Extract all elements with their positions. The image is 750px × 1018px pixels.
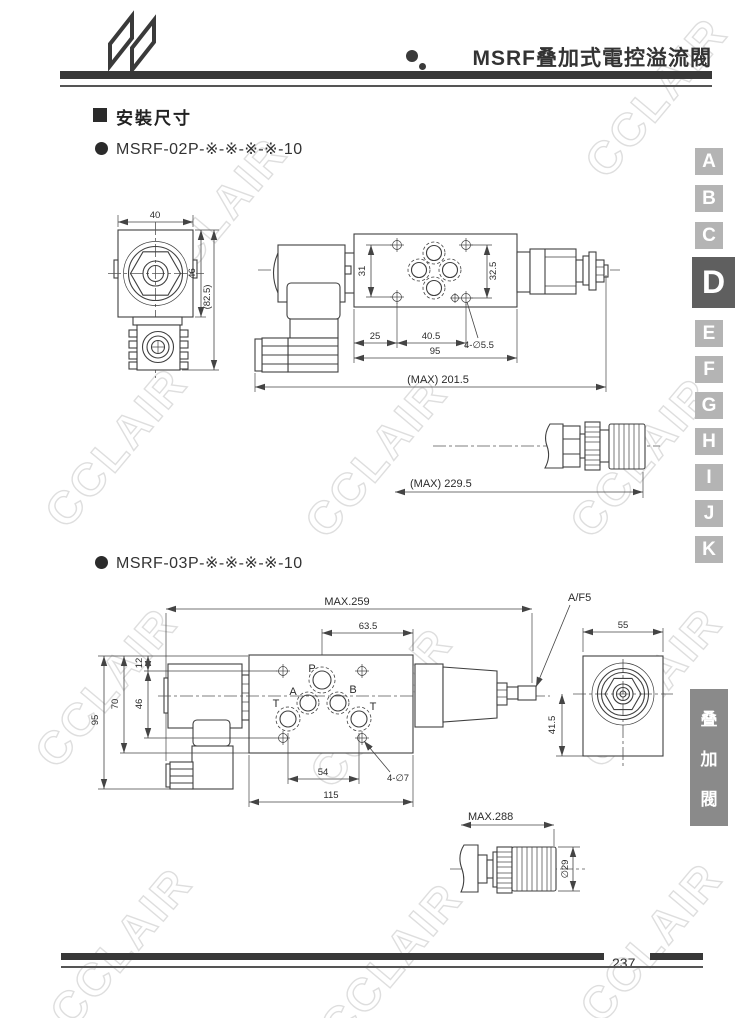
dim-12-label: 12 xyxy=(134,658,145,669)
dim-70-label: 70 xyxy=(110,699,121,710)
footer-rule-thick-left xyxy=(61,953,604,960)
header-rule-thick xyxy=(60,71,712,79)
sidebar-tab-j: J xyxy=(695,500,723,527)
dim-4xd7-label: 4-∅7 xyxy=(387,773,409,784)
msrf-03p-top-view: MAX.259 63.5 A/F5 xyxy=(90,592,591,807)
section-marker xyxy=(93,108,107,122)
sidebar-tab-c: C xyxy=(695,222,723,249)
page-number: 237 xyxy=(612,955,635,971)
adjustment-screw xyxy=(415,664,536,727)
port-t-right-label: T xyxy=(370,701,377,713)
dim-dia-29-label: ∅29 xyxy=(560,860,571,879)
catalog-page: CCLAIR CCLAIR CCLAIR CCLAIR CCLAIR CCLAI… xyxy=(0,0,750,1018)
dim-54-label: 54 xyxy=(318,767,329,778)
model-label-03p: MSRF-03P-※-※-※-※-10 xyxy=(116,553,303,573)
sidebar-tab-g: G xyxy=(695,392,723,419)
company-logo-icon xyxy=(105,8,165,78)
port-t-left-label: T xyxy=(273,698,280,710)
dim-max-201-5-label: (MAX) 201.5 xyxy=(407,374,469,386)
dim-115-label: 115 xyxy=(323,790,338,801)
dim-max-229-5-label: (MAX) 229.5 xyxy=(410,478,472,490)
category-char-2: 加 xyxy=(701,745,718,770)
msrf-03p-end-view: 55 41.5 xyxy=(547,620,673,768)
dim-af5-label: A/F5 xyxy=(568,592,591,604)
sidebar-tab-e: E xyxy=(695,320,723,347)
page-title: MSRF叠加式電控溢流閥 xyxy=(473,42,713,72)
bullet-icon xyxy=(95,556,108,569)
dim-31-label: 31 xyxy=(357,266,368,277)
dim-46-label: 46 xyxy=(187,268,198,279)
msrf-02p-front-view: 40 46 xyxy=(108,210,219,378)
title-dot-large xyxy=(406,50,418,62)
port-p-label: P xyxy=(308,663,315,675)
dim-95-label-2: 95 xyxy=(90,715,101,726)
dim-95-label: 95 xyxy=(430,346,441,357)
sidebar-tab-i: I xyxy=(695,464,723,491)
msrf-02p-dimension-drawing: 40 46 xyxy=(60,180,680,510)
header-rule-thin xyxy=(60,85,712,87)
adjustment-screw xyxy=(517,249,608,294)
dim-41-5-label: 41.5 xyxy=(547,716,558,735)
dim-25-label: 25 xyxy=(370,331,381,342)
sidebar-tab-a: A xyxy=(695,148,723,175)
section-heading: 安裝尺寸 xyxy=(116,104,192,129)
dim-46-label-2: 46 xyxy=(134,699,145,710)
footer-rule-thick-right xyxy=(650,953,703,960)
dim-max-259-label: MAX.259 xyxy=(324,596,369,608)
sidebar-tab-d-active: D xyxy=(692,257,735,308)
dim-4xd5-5-label: 4-∅5.5 xyxy=(464,340,494,351)
category-char-1: 叠 xyxy=(701,705,718,730)
bullet-icon xyxy=(95,142,108,155)
dim-55-label: 55 xyxy=(618,620,629,631)
category-char-3: 閥 xyxy=(701,785,718,810)
port-a-label: A xyxy=(289,686,297,698)
msrf-03p-knob-option: MAX.288 ∅29 xyxy=(450,811,585,893)
sidebar-tab-f: F xyxy=(695,356,723,383)
title-dot-small xyxy=(419,63,426,70)
category-tab-stack-valve: 叠 加 閥 xyxy=(690,689,728,826)
footer-rule-thin xyxy=(61,966,703,968)
sidebar-tab-b: B xyxy=(695,185,723,212)
msrf-02p-knob-option: (MAX) 229.5 xyxy=(395,422,660,498)
dim-40-label: 40 xyxy=(150,210,161,221)
port-b-label: B xyxy=(349,684,356,696)
dim-40-5-label: 40.5 xyxy=(422,331,441,342)
dim-max-288-label: MAX.288 xyxy=(468,811,513,823)
msrf-03p-dimension-drawing: MAX.259 63.5 A/F5 xyxy=(60,580,690,930)
dim-32-5-label: 32.5 xyxy=(488,262,499,281)
dim-63-5-label: 63.5 xyxy=(359,621,378,632)
dim-82-5-label: (82.5) xyxy=(202,285,213,310)
msrf-02p-side-view: 31 32.5 25 40 xyxy=(255,234,620,392)
sidebar-tab-k: K xyxy=(695,536,723,563)
model-label-02p: MSRF-02P-※-※-※-※-10 xyxy=(116,139,303,159)
sidebar-tab-h: H xyxy=(695,428,723,455)
